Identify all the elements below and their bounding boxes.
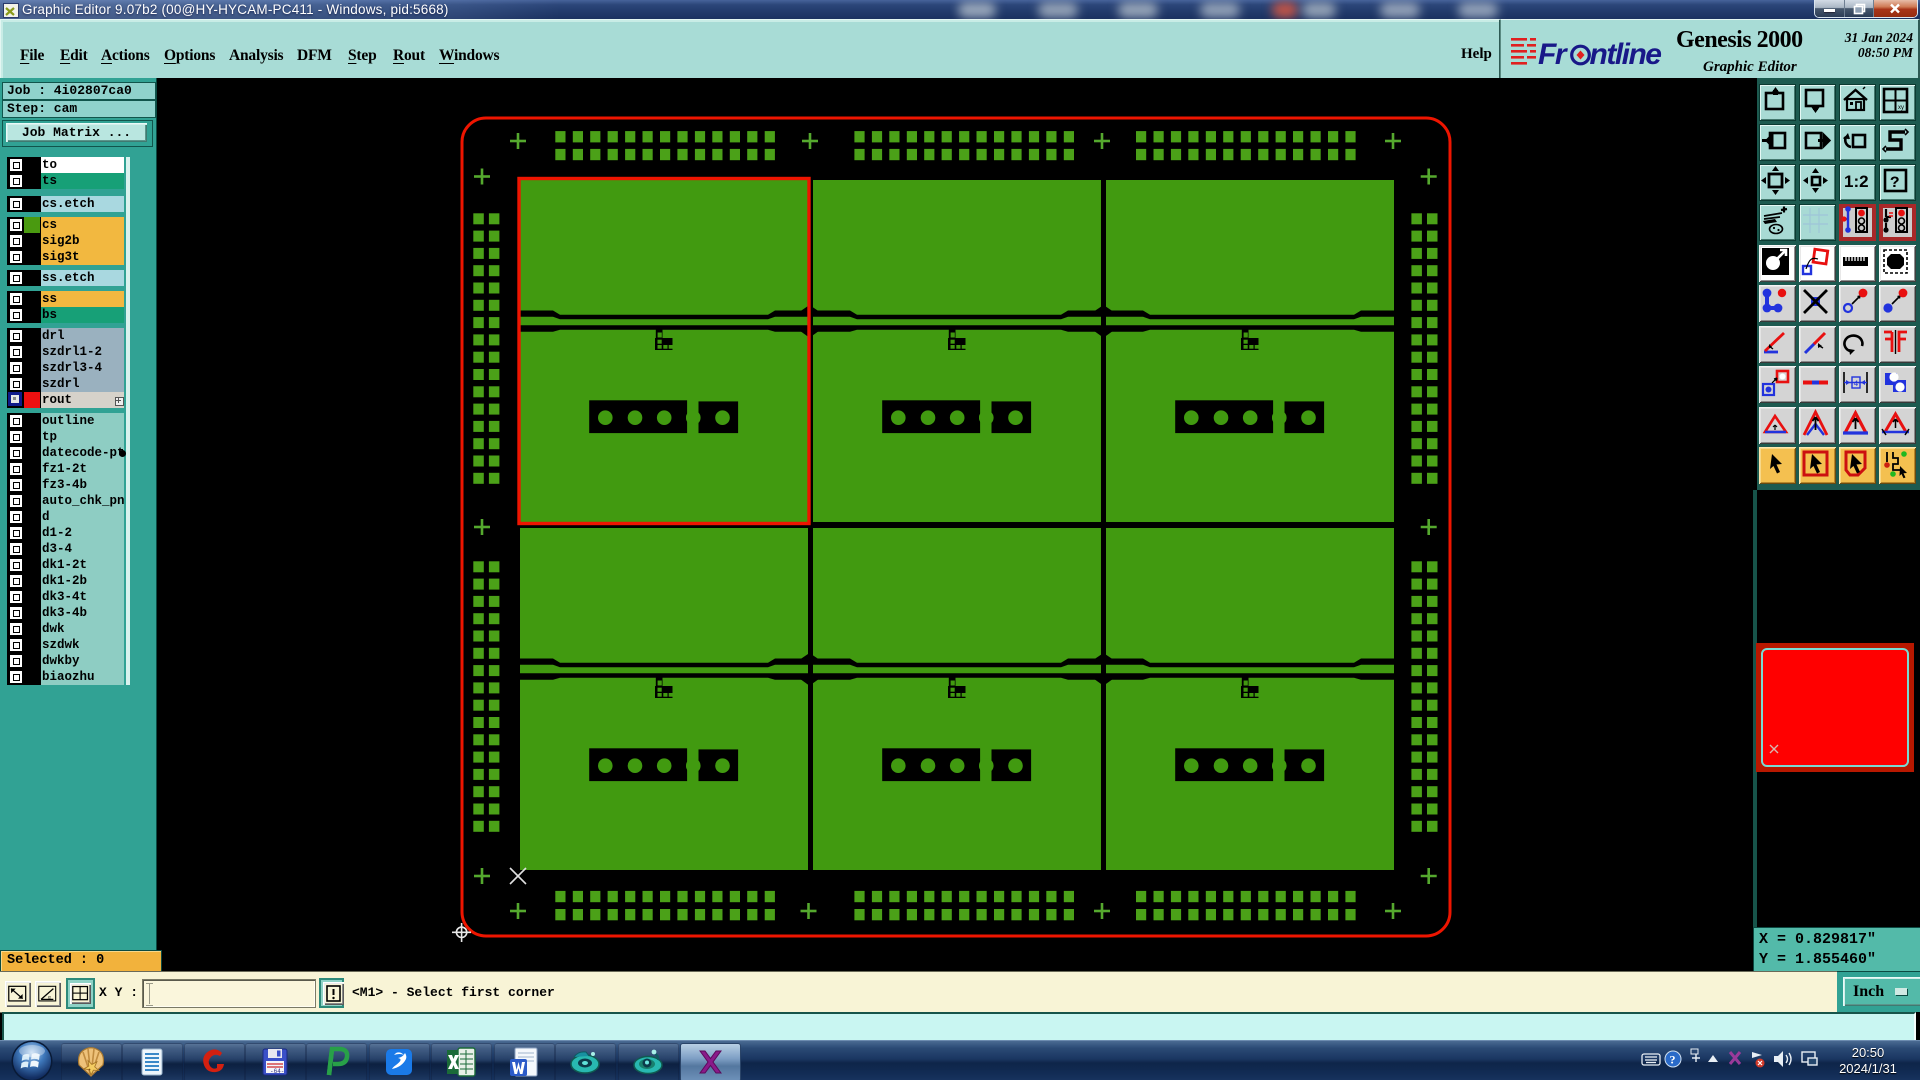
- svg-text:Fr: Fr: [1538, 38, 1569, 70]
- svg-text:α: α: [48, 995, 51, 1000]
- svg-text:ntline: ntline: [1590, 38, 1662, 70]
- svg-text:xy: xy: [1898, 105, 1904, 111]
- svg-text:-64-: -64-: [270, 1068, 284, 1075]
- svg-text:?: ?: [1890, 174, 1900, 192]
- svg-text:1:2: 1:2: [1844, 172, 1869, 191]
- svg-text:4: 4: [1854, 380, 1859, 389]
- svg-text:?: ?: [1670, 1053, 1676, 1067]
